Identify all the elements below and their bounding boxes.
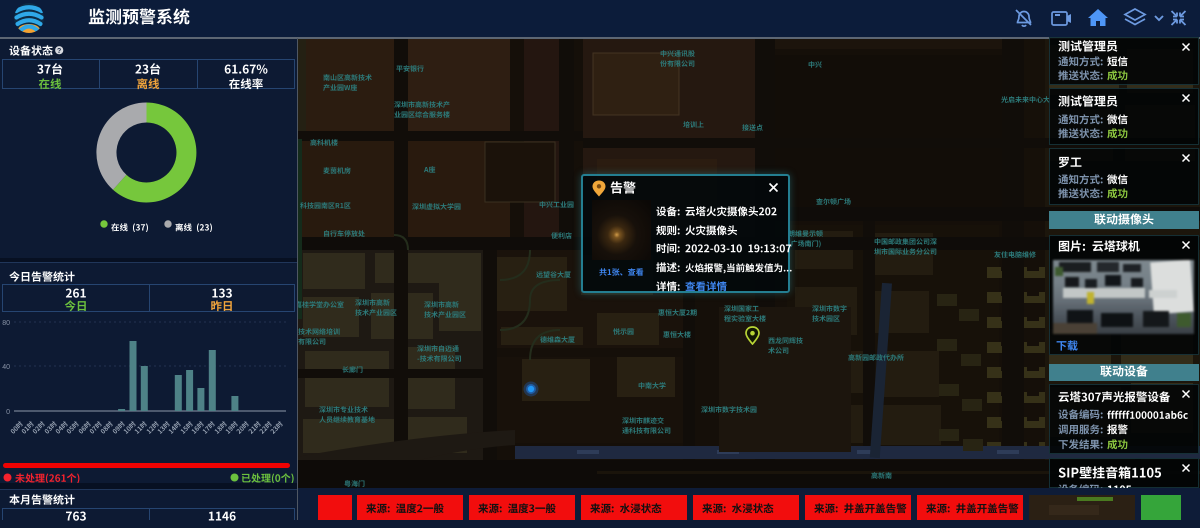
svg-text:40: 40 <box>2 364 10 371</box>
svg-text:0: 0 <box>6 409 10 416</box>
svg-text:80: 80 <box>2 320 10 327</box>
